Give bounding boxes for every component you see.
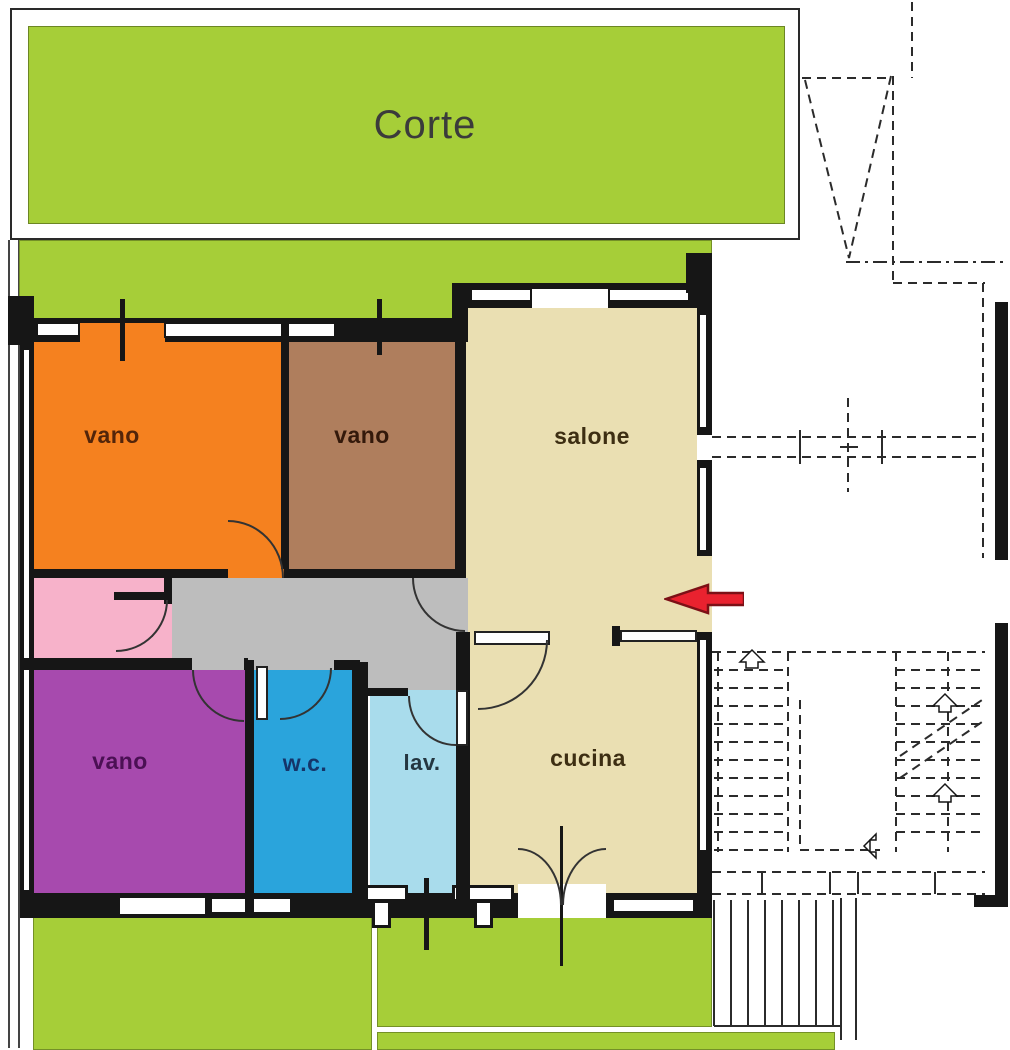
stair-flight-right	[896, 652, 985, 852]
window-bottom-2	[612, 898, 695, 913]
stair-direction-arrow-4	[864, 834, 876, 858]
room-vano-n	[284, 320, 462, 578]
window-bottom-open-1	[120, 898, 205, 914]
window-top-2	[164, 322, 336, 338]
wall-vano-salone	[455, 342, 466, 578]
door-leaf-lav	[456, 690, 468, 746]
stair-direction-arrow-2	[933, 694, 957, 712]
window-t-marker-2-stem	[474, 900, 493, 928]
entrance-arrow-shape	[666, 585, 744, 613]
door-leaf-wc	[256, 666, 268, 720]
wall-right-channel-2	[700, 468, 706, 550]
corridor-ext	[360, 662, 468, 690]
wall-vano-divider	[281, 324, 289, 578]
label-vano-sw: vano	[40, 748, 200, 775]
stair-direction-arrow-3	[933, 784, 957, 802]
label-cucina: cucina	[508, 745, 668, 772]
hall-rail	[620, 630, 697, 642]
plot-boundary-strip	[8, 240, 20, 1048]
window-tick-1	[120, 299, 125, 361]
stair-bottom-separators	[762, 872, 935, 894]
stairwell-wall-lower	[995, 623, 1008, 905]
corridor-dashed-pair	[712, 398, 980, 492]
floorplan-canvas: Corte vano vano salone vano w.c. lav. cu…	[0, 0, 1010, 1050]
wall-left-channel	[24, 350, 29, 890]
wall-right-gap-landing	[697, 435, 712, 460]
label-vano-n: vano	[282, 422, 442, 449]
stairwell-wall-upper	[995, 302, 1008, 560]
window-salone-1	[470, 288, 532, 302]
funnel-dashed-lines	[802, 2, 912, 280]
wall-ripostiglio-stub	[114, 592, 170, 600]
wall-lav-top	[356, 688, 408, 696]
corridor-jamb-marks	[800, 430, 882, 464]
stairwell-wall-stub	[974, 895, 1008, 907]
window-salone-2	[608, 288, 690, 302]
wall-right-channel-1	[700, 315, 706, 427]
label-vano-nw: vano	[32, 422, 192, 449]
window-opening-salone	[532, 287, 608, 308]
label-salone: salone	[512, 423, 672, 450]
door-gap-vano-sw	[192, 658, 244, 670]
window-top-1	[36, 322, 80, 337]
window-tick-bottom-1	[424, 878, 429, 950]
stair-flight-left	[714, 652, 788, 852]
window-tick-2	[377, 299, 382, 355]
wall-right-channel-3	[700, 640, 706, 850]
window-t-marker-1-stem	[372, 900, 391, 928]
entrance-arrow-icon	[664, 583, 744, 615]
wall-vano-sw-wc	[245, 660, 254, 918]
stair-diagonals	[900, 700, 982, 778]
wall-wc-lav	[352, 662, 368, 918]
stair-direction-arrow-1	[740, 650, 764, 668]
wall-left-corner	[8, 296, 34, 345]
stair-bottom-pair	[712, 872, 985, 894]
hall-rail-tick	[612, 626, 620, 646]
external-steps	[714, 898, 856, 1040]
garden-south-strip	[377, 1032, 835, 1050]
label-corte: Corte	[285, 103, 565, 148]
landing-dashed-lines	[893, 283, 985, 558]
label-wc: w.c.	[245, 750, 365, 777]
label-lav: lav.	[372, 750, 472, 776]
garden-south-left	[33, 915, 372, 1050]
stair-inner-rail	[800, 700, 880, 850]
